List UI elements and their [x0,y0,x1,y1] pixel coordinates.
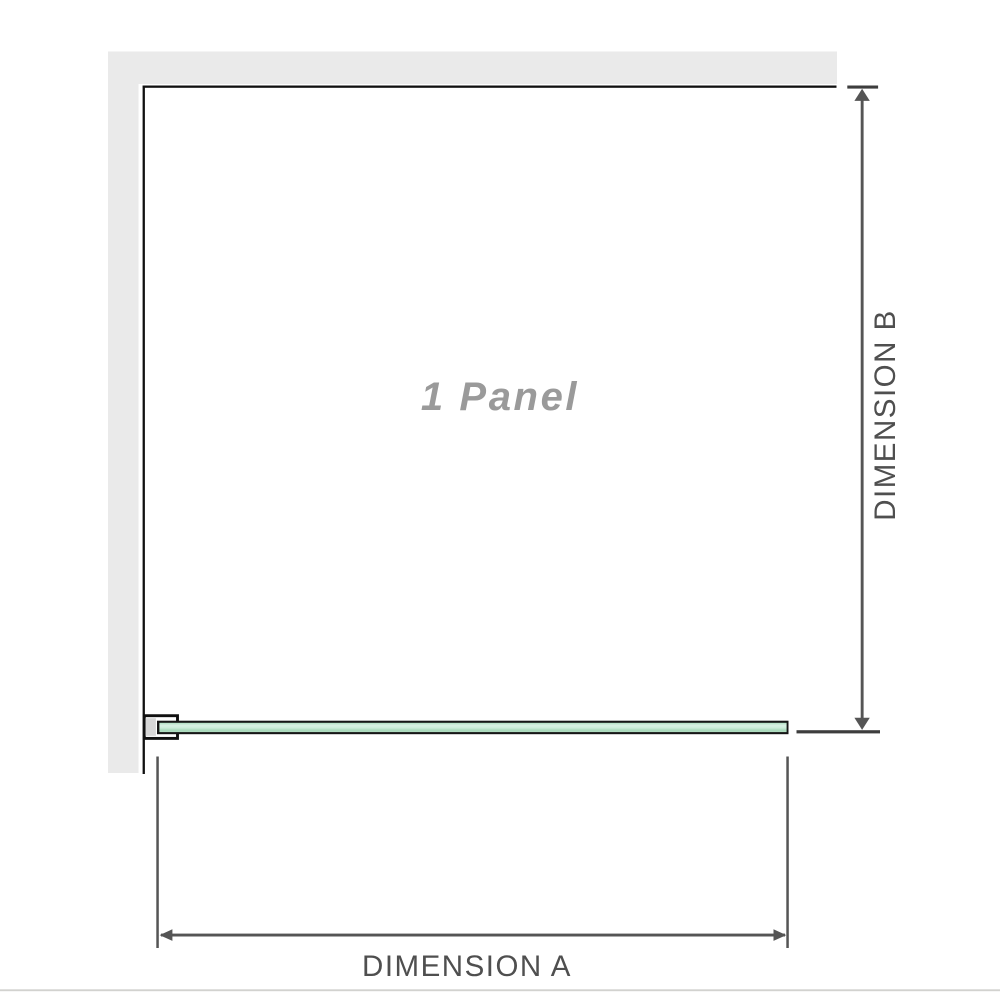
svg-text:DIMENSION B: DIMENSION B [869,309,902,521]
svg-text:1 Panel: 1 Panel [421,375,579,419]
svg-text:DIMENSION A: DIMENSION A [362,950,572,983]
